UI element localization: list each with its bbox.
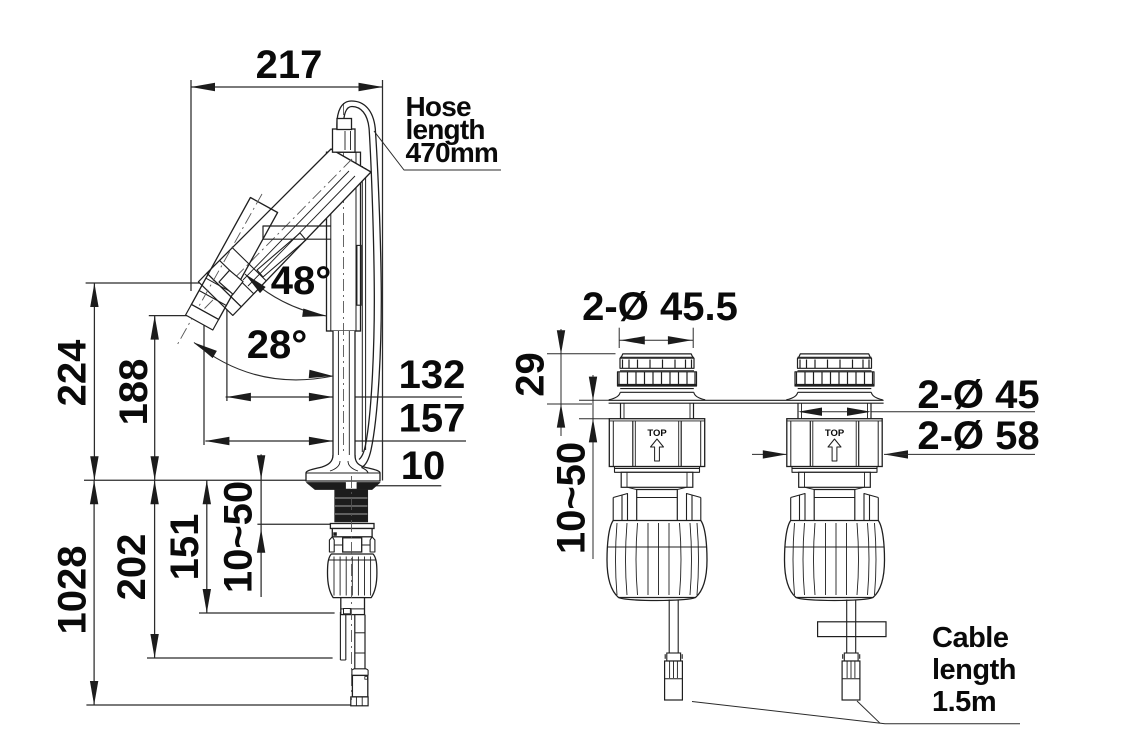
svg-text:TOP: TOP — [825, 428, 845, 439]
svg-text:29: 29 — [509, 352, 553, 397]
svg-text:151: 151 — [163, 514, 207, 581]
svg-text:2-Ø 45: 2-Ø 45 — [917, 373, 1039, 417]
svg-text:202: 202 — [110, 534, 154, 601]
svg-text:2-Ø 45.5: 2-Ø 45.5 — [582, 285, 738, 329]
svg-text:28°: 28° — [247, 323, 308, 367]
svg-text:10~50: 10~50 — [550, 442, 594, 554]
svg-text:TOP: TOP — [647, 428, 667, 439]
svg-text:10~50: 10~50 — [217, 481, 261, 593]
svg-text:188: 188 — [112, 359, 156, 426]
svg-text:48°: 48° — [271, 259, 332, 303]
svg-text:157: 157 — [399, 397, 466, 441]
svg-text:1028: 1028 — [51, 546, 95, 635]
svg-text:217: 217 — [256, 43, 323, 87]
svg-text:132: 132 — [399, 353, 466, 397]
svg-text:2-Ø 58: 2-Ø 58 — [917, 414, 1039, 458]
svg-text:224: 224 — [51, 339, 95, 406]
svg-text:10: 10 — [401, 444, 446, 488]
